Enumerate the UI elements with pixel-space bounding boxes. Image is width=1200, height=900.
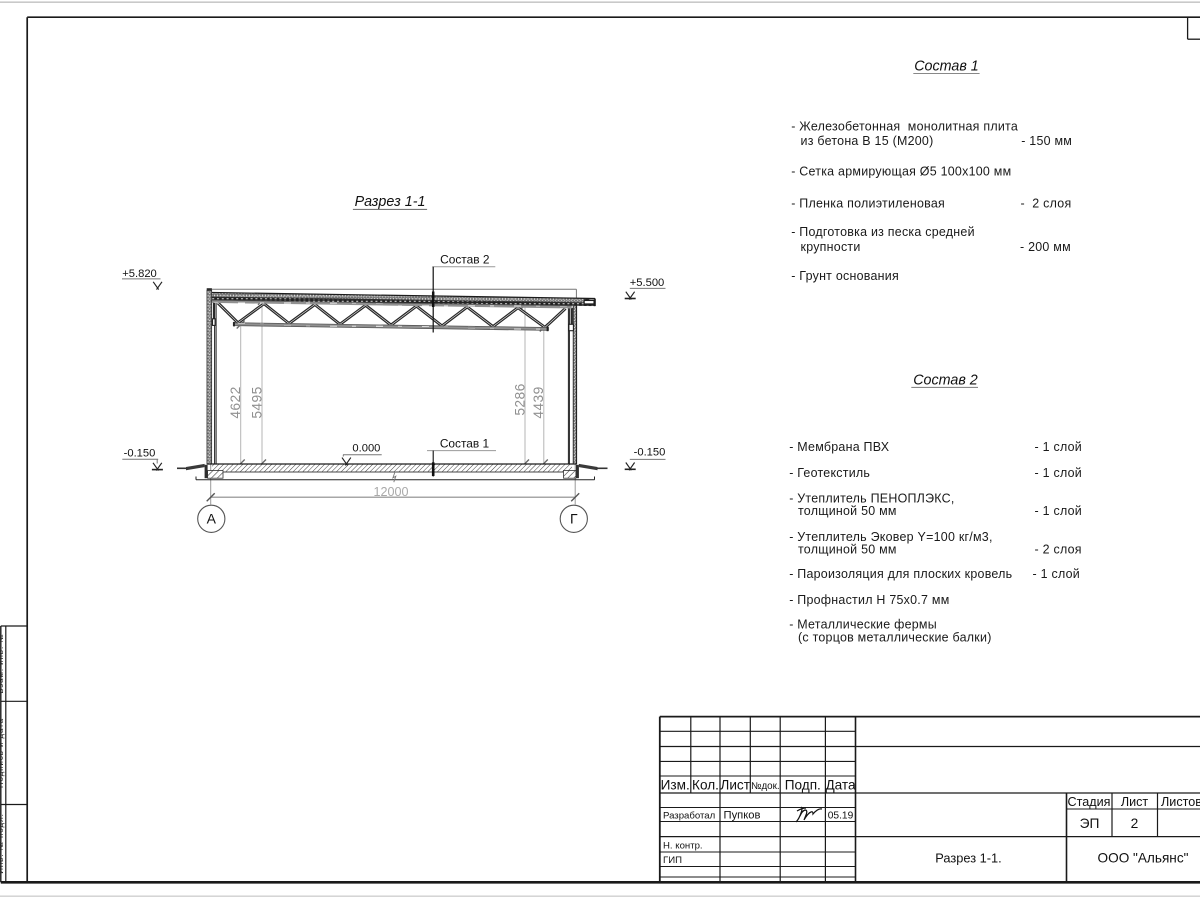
svg-text:Лист: Лист <box>1121 795 1149 809</box>
svg-text:- Подготовка из песка средней: - Подготовка из песка средней <box>791 225 975 239</box>
svg-text:Листов: Листов <box>1161 795 1200 809</box>
svg-text:Состав 1: Состав 1 <box>440 436 490 450</box>
svg-text:Состав 2: Состав 2 <box>913 373 978 389</box>
svg-text:толщиной 50 мм: толщиной 50 мм <box>798 504 897 518</box>
svg-text:Г: Г <box>570 511 578 527</box>
svg-text:(с торцов металлические балки): (с торцов металлические балки) <box>798 630 992 644</box>
svg-text:4439: 4439 <box>531 386 546 418</box>
svg-text:12000: 12000 <box>373 485 408 499</box>
svg-text:Состав 1: Состав 1 <box>914 59 979 75</box>
svg-text:Н. контр.: Н. контр. <box>663 840 703 851</box>
svg-text:Кол.: Кол. <box>692 778 719 793</box>
svg-text:5286: 5286 <box>513 383 528 415</box>
svg-text:Подп.: Подп. <box>785 778 821 793</box>
svg-text:- Пароизоляция для плоских кро: - Пароизоляция для плоских кровель <box>789 567 1012 581</box>
svg-text:Инв. № подл.: Инв. № подл. <box>0 813 5 874</box>
svg-text:-0.150: -0.150 <box>634 447 666 459</box>
svg-text:+5.500: +5.500 <box>630 277 665 289</box>
svg-text:0.000: 0.000 <box>352 443 380 455</box>
svg-text:- 2 слоя: - 2 слоя <box>1035 543 1082 557</box>
svg-text:Стадия: Стадия <box>1068 795 1111 809</box>
svg-text:А: А <box>207 511 217 527</box>
svg-text:+5.820: +5.820 <box>122 268 157 280</box>
svg-text:Лист: Лист <box>720 778 750 793</box>
svg-text:крупности: крупности <box>801 240 861 254</box>
svg-text:Разрез 1-1: Разрез 1-1 <box>355 194 426 210</box>
svg-text:ЭП: ЭП <box>1080 816 1100 831</box>
svg-text:5495: 5495 <box>250 386 265 418</box>
svg-text:- Сетка армирующая Ø5 100х100: - Сетка армирующая Ø5 100х100 мм <box>791 165 1011 179</box>
svg-text:Разрез 1-1.: Разрез 1-1. <box>935 850 1001 865</box>
svg-text:- Железобетонная монолитная п: - Железобетонная монолитная плита <box>791 120 1018 134</box>
svg-text:из бетона В 15 (М200): из бетона В 15 (М200) <box>801 134 934 148</box>
svg-text:- 150 мм: - 150 мм <box>1021 134 1072 148</box>
svg-text:Разработал: Разработал <box>663 810 715 821</box>
svg-text:Состав 2: Состав 2 <box>440 252 490 266</box>
svg-text:№док.: №док. <box>751 781 780 792</box>
svg-text:- Геотекстиль: - Геотекстиль <box>789 466 870 480</box>
svg-text:- Пленка полиэтиленовая: - Пленка полиэтиленовая <box>791 197 945 211</box>
svg-text:- Профнастил Н 75х0.7 мм: - Профнастил Н 75х0.7 мм <box>789 593 949 607</box>
svg-text:- 1 слой: - 1 слой <box>1033 567 1080 581</box>
svg-text:Пупков: Пупков <box>724 810 761 822</box>
svg-text:- 1 слой: - 1 слой <box>1035 466 1082 480</box>
svg-text:ООО "Альянс": ООО "Альянс" <box>1098 850 1189 865</box>
svg-text:ГИП: ГИП <box>663 855 682 866</box>
svg-text:- Мембрана ПВХ: - Мембрана ПВХ <box>789 440 890 454</box>
svg-text:Изм.: Изм. <box>661 778 690 793</box>
svg-text:- 2 слоя: - 2 слоя <box>1021 197 1072 211</box>
svg-text:толщиной 50 мм: толщиной 50 мм <box>798 543 897 557</box>
svg-text:05.19: 05.19 <box>828 810 854 821</box>
svg-text:- 200 мм: - 200 мм <box>1020 240 1071 254</box>
svg-text:Взам. инв. №: Взам. инв. № <box>0 633 5 693</box>
svg-text:- 1 слой: - 1 слой <box>1035 504 1082 518</box>
svg-text:2: 2 <box>1131 816 1139 831</box>
svg-text:- Металлические фермы: - Металлические фермы <box>789 617 937 631</box>
svg-text:- Грунт основания: - Грунт основания <box>791 269 899 283</box>
svg-text:Дата: Дата <box>825 778 856 793</box>
svg-text:- 1 слой: - 1 слой <box>1035 440 1082 454</box>
svg-text:-0.150: -0.150 <box>124 447 156 459</box>
svg-text:4622: 4622 <box>228 386 243 418</box>
svg-text:Подпись и дата: Подпись и дата <box>0 718 5 788</box>
